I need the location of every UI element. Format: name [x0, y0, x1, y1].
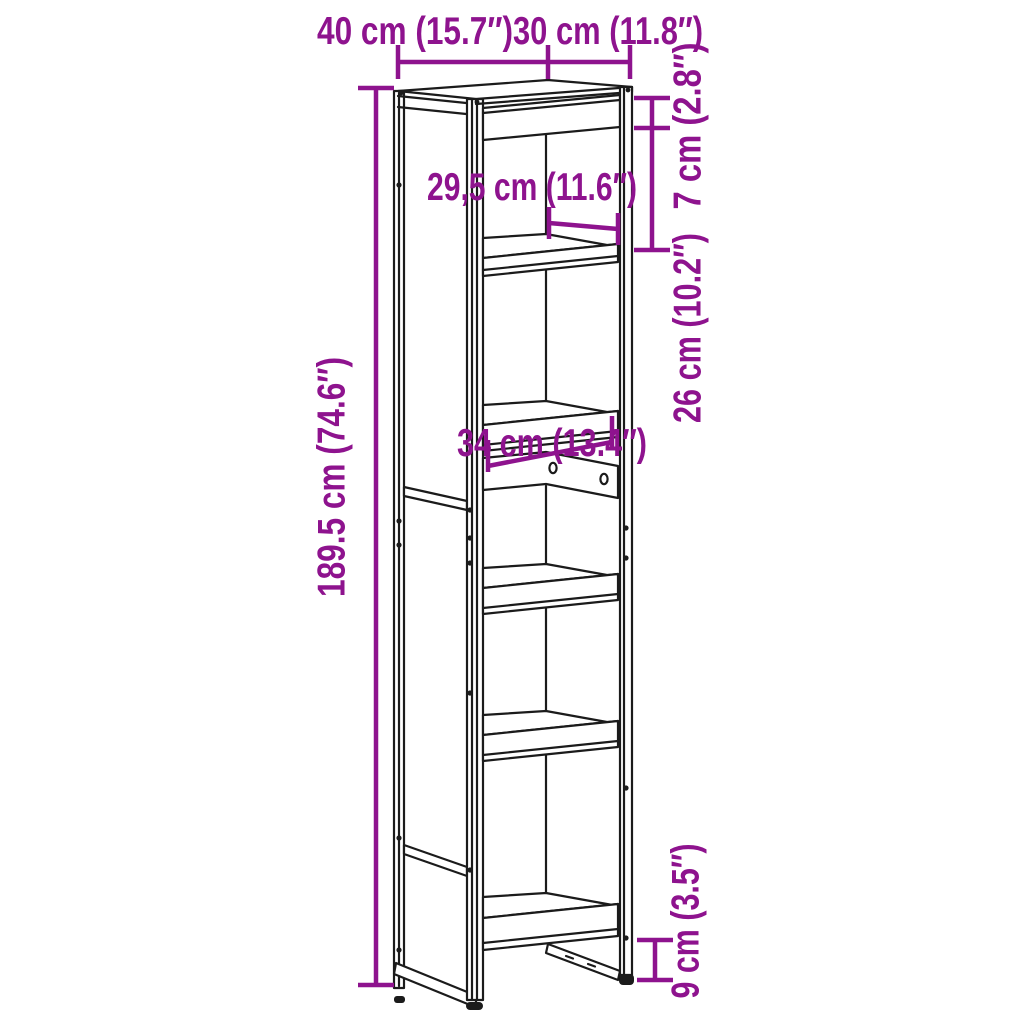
- shelf-1: [483, 234, 618, 276]
- dim-right-upper-line: [634, 98, 670, 250]
- dim-right-upper: 7 cm (2.8″) 26 cm (10.2″): [634, 43, 710, 424]
- dim-inner-depth: 29,5 cm (11.6″): [427, 166, 637, 245]
- dim-total-height-line: [358, 88, 394, 985]
- dim-inner-width-label: 34 cm (13.4″): [457, 422, 647, 465]
- front-left-post: [466, 99, 483, 1010]
- dim-total-height: 189.5 cm (74.6″): [311, 88, 395, 985]
- fastener-dots: [396, 88, 630, 953]
- dim-inner-depth-label: 29,5 cm (11.6″): [427, 166, 637, 209]
- dim-top-rail-label: 7 cm (2.8″): [667, 43, 710, 210]
- dim-bottom-clearance-label: 9 cm (3.5″): [665, 844, 708, 999]
- dim-inner-width: 34 cm (13.4″): [457, 416, 647, 472]
- shelf-3: [483, 564, 618, 614]
- side-frame-rails: [394, 96, 477, 1007]
- dim-bottom-clearance: 9 cm (3.5″): [637, 844, 708, 999]
- bottom-shelf: [483, 893, 618, 950]
- right-sled-runner: [546, 944, 620, 980]
- front-right-post: [619, 87, 634, 985]
- dim-width-label: 40 cm (15.7″): [317, 10, 513, 53]
- dim-top-compartment-label: 26 cm (10.2″): [667, 233, 710, 423]
- dim-total-height-label: 189.5 cm (74.6″): [311, 357, 354, 597]
- bookcase-line-drawing: [394, 80, 634, 1010]
- shelf-4: [483, 711, 618, 761]
- dimension-diagram: 40 cm (15.7″) 30 cm (11.8″) 189.5 cm (74…: [0, 0, 1024, 1024]
